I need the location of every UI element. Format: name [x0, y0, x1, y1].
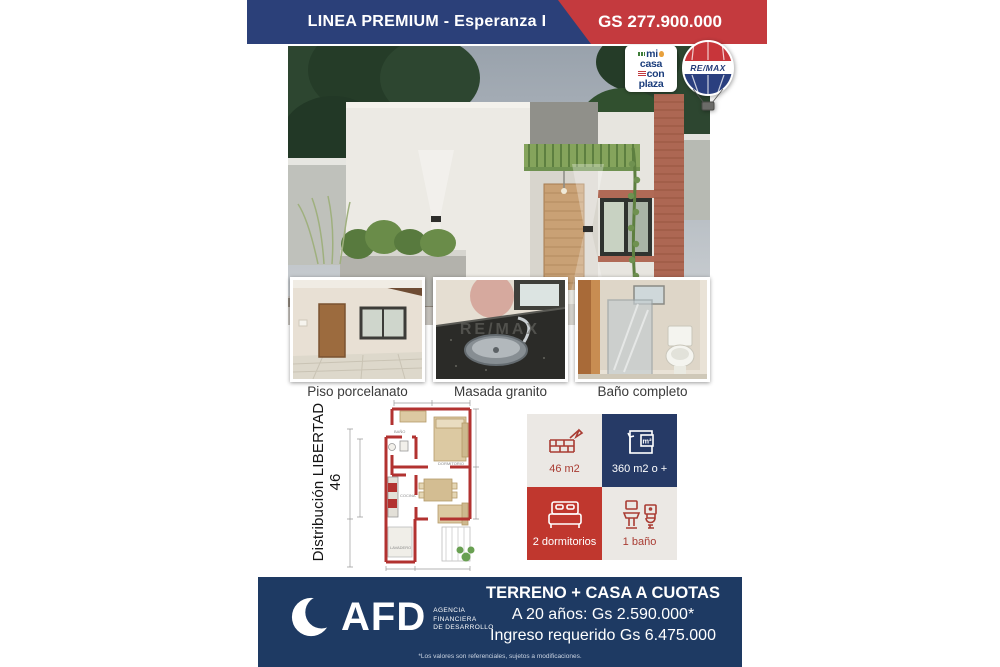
shower-glass [608, 300, 652, 376]
leaf-mark-icon [638, 52, 645, 56]
kitchen-sink-illustration: RE/MAX [436, 280, 565, 379]
hot-air-balloon-icon: RE/MAX [679, 40, 737, 112]
stat-label: 2 dormitorios [533, 536, 597, 548]
afd-logo: AFD AGENCIA FINANCIERA DE DESARROLLO [290, 594, 494, 640]
svg-text:LAVADERO: LAVADERO [390, 545, 411, 550]
interior-room-illustration [293, 280, 422, 379]
door-frame [578, 280, 591, 379]
stat-bathrooms: 1 baño [602, 487, 677, 560]
header-bar: LINEA PREMIUM - Esperanza I GS 277.900.0… [247, 0, 767, 44]
stat-bedrooms: 2 dormitorios [527, 487, 602, 560]
bathroom-illustration [578, 280, 707, 379]
financing-offer: TERRENO + CASA A CUOTAS A 20 años: Gs 2.… [470, 584, 736, 645]
bricks-icon [546, 426, 584, 458]
floorplan-svg: BAÑO DORMITORIO COCINA LAVADERO [342, 399, 484, 571]
listing-title: LINEA PREMIUM - Esperanza I [277, 0, 577, 44]
photo-floor [290, 277, 425, 382]
remax-balloon-logo: RE/MAX [679, 40, 737, 112]
offer-headline: TERRENO + CASA A CUOTAS [470, 584, 736, 603]
photo-bathroom [575, 277, 710, 382]
micasa-word: mi [646, 49, 658, 59]
financing-banner: AFD AGENCIA FINANCIERA DE DESARROLLO TER… [258, 577, 742, 667]
price-value: GS 277.900.000 [567, 0, 753, 44]
balloon-mark-icon [659, 51, 664, 57]
floorplan-title: Distribución LIBERTAD 46 [310, 397, 334, 567]
plant [457, 547, 475, 562]
bath-icon [621, 499, 659, 531]
afd-wordmark: AFD [341, 596, 426, 638]
micasa-word: con [647, 69, 665, 79]
real-estate-flyer: LINEA PREMIUM - Esperanza I GS 277.900.0… [0, 0, 1000, 667]
micasa-word: plaza [639, 79, 664, 89]
area-icon: m² [621, 426, 659, 458]
caption-bathroom: Baño completo [575, 384, 710, 402]
window [598, 190, 654, 262]
mi-casa-con-plaza-logo: mi casa con plaza [625, 45, 677, 92]
bed-icon [546, 499, 584, 531]
micasa-word: casa [640, 59, 662, 69]
stat-lot-area: m² 360 m2 o + [602, 414, 677, 487]
m2-label: m² [642, 437, 652, 446]
offer-income: Ingreso requerido Gs 6.475.000 [470, 627, 736, 645]
stat-label: 1 baño [623, 536, 657, 548]
disclaimer-text: *Los valores son referenciales, sujetos … [258, 653, 742, 660]
brick-column [654, 94, 684, 298]
svg-text:DORMITORIO: DORMITORIO [438, 461, 464, 466]
svg-text:COCINA: COCINA [400, 493, 416, 498]
floorplan-drawing: BAÑO DORMITORIO COCINA LAVADERO [342, 399, 484, 571]
photo-countertop: RE/MAX [433, 277, 568, 382]
property-stats: 46 m2 m² 360 m2 o + [527, 414, 677, 560]
stat-label: 46 m2 [549, 463, 580, 475]
stat-built-area: 46 m2 [527, 414, 602, 487]
door [319, 304, 345, 357]
stripes-mark-icon [638, 71, 646, 76]
afd-swoosh-icon [290, 594, 334, 640]
offer-installment: A 20 años: Gs 2.590.000* [470, 606, 736, 624]
remax-watermark: RE/MAX [460, 321, 540, 338]
stat-label: 360 m2 o + [612, 463, 667, 475]
svg-text:BAÑO: BAÑO [394, 429, 405, 434]
remax-label: RE/MAX [690, 63, 726, 73]
